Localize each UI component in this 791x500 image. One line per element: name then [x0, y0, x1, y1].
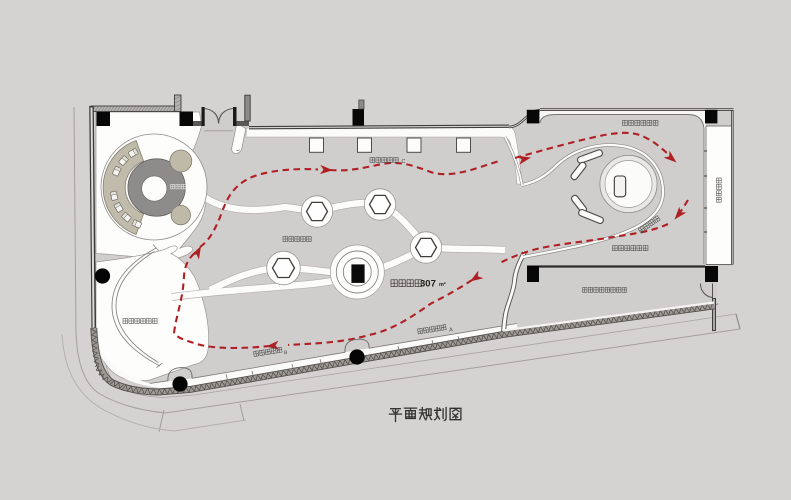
svg-text:C: C — [402, 159, 406, 165]
svg-text:307: 307 — [420, 279, 436, 290]
svg-text:m²: m² — [439, 281, 446, 288]
